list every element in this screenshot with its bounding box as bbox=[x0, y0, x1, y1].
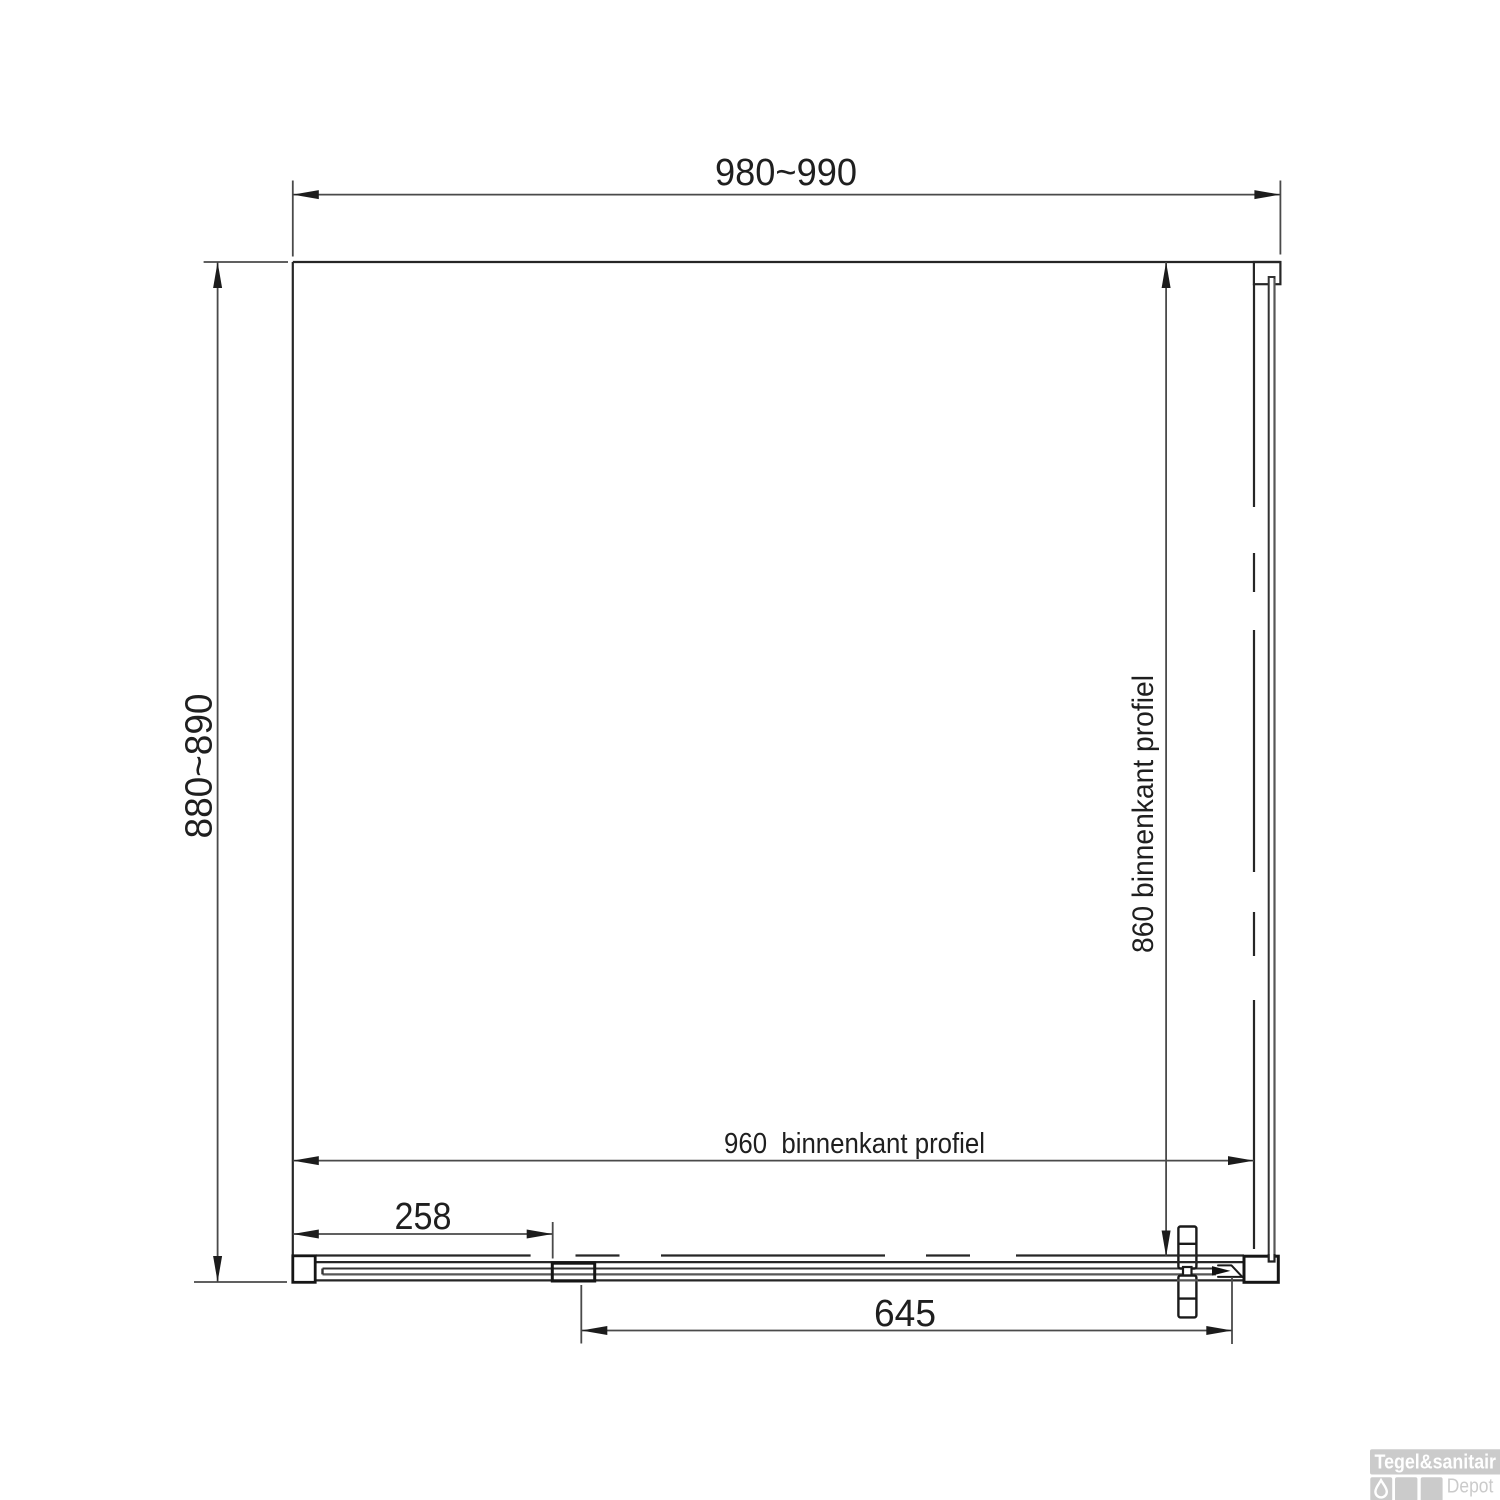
svg-text:Depot: Depot bbox=[1447, 1475, 1494, 1497]
svg-text:645: 645 bbox=[874, 1293, 936, 1335]
svg-text:880~890: 880~890 bbox=[179, 694, 221, 839]
svg-text:980~990: 980~990 bbox=[715, 152, 857, 194]
svg-text:960 binnenkant profiel: 960 binnenkant profiel bbox=[724, 1128, 985, 1160]
svg-text:860 binnenkant profiel: 860 binnenkant profiel bbox=[1127, 675, 1160, 953]
svg-text:Tegel&sanitair: Tegel&sanitair bbox=[1375, 1452, 1497, 1474]
svg-text:258: 258 bbox=[395, 1196, 452, 1238]
